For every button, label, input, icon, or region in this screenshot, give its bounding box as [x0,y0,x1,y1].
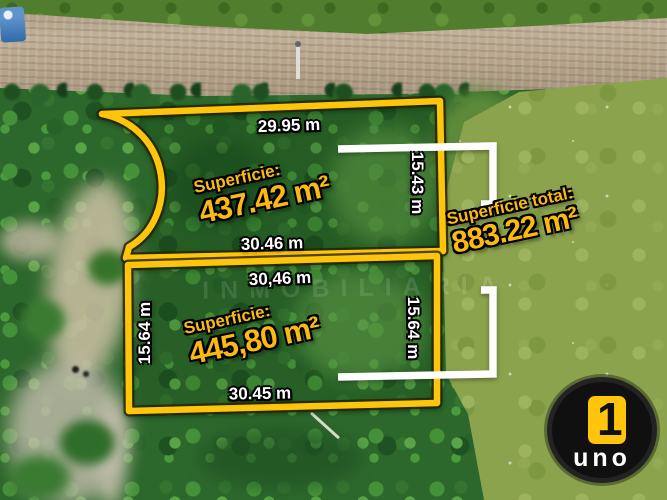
plot1-top-dimension: 29.95 m [257,115,320,137]
uno-logo: 1 uno [547,377,657,483]
uno-logo-text: uno [552,444,652,473]
plot1-bottom-dimension: 30.46 m [241,233,304,255]
plot2-left-dimension: 15.64 m [135,302,155,364]
aerial-photo: INMOBILIARIA 29.95 m 15.43 m 30.46 m 30,… [0,0,667,500]
plot2-bottom-dimension: 30.45 m [229,383,292,404]
uno-logo-number: 1 [597,392,623,446]
uno-logo-number-icon: 1 [588,396,626,444]
plot2-top-dimension: 30,46 m [248,268,311,290]
plot2-right-dimension: 15.64 m [403,297,423,359]
plot1-right-dimension: 15.43 m [407,152,427,214]
